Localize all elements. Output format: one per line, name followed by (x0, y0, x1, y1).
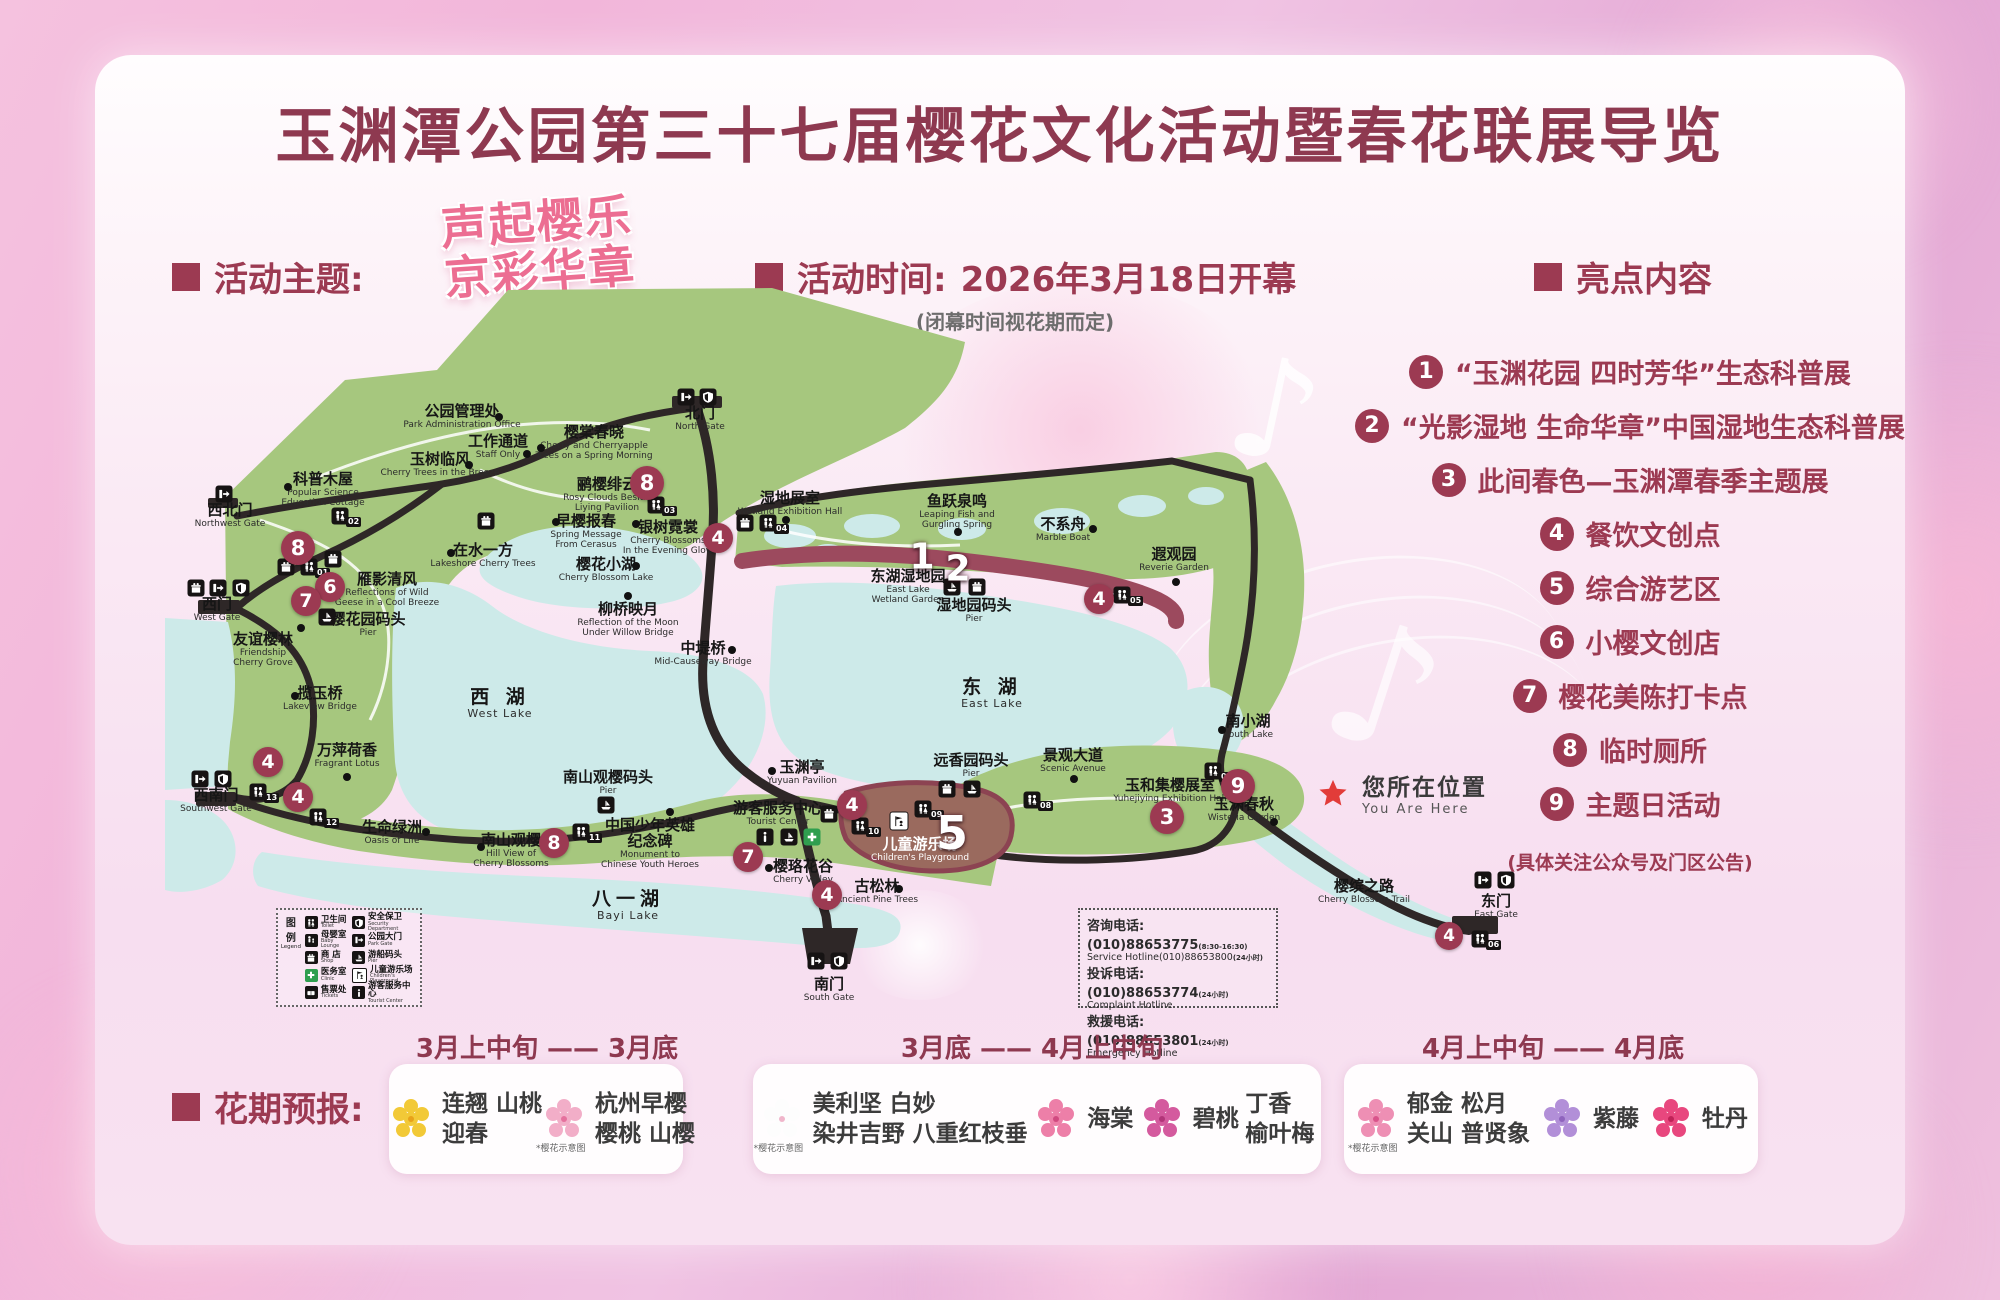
legend-item: 商 店Shop (305, 949, 349, 966)
flower-name: 榆叶梅 (1245, 1122, 1314, 1146)
map-label-en: Pier (933, 769, 1008, 779)
map-dot (495, 413, 503, 421)
map-marker-4: 4 (1084, 584, 1114, 614)
map-dot (291, 692, 299, 700)
map-dot (343, 773, 351, 781)
map-dot (632, 562, 640, 570)
flower-name: 牡丹 (1702, 1107, 1748, 1131)
crabapple-flower-icon (1034, 1097, 1078, 1141)
map-label-cn: 雁影清风 (335, 572, 439, 588)
map-label-en: Popular Science Education Cottage (281, 488, 364, 509)
star-icon (1318, 778, 1348, 808)
map-dot (1218, 726, 1226, 734)
forecast-entry: *樱花示意图郁金 松月关山 普贤象 (1354, 1092, 1530, 1145)
map-label-en: Ancient Pine Trees (836, 895, 918, 905)
map-label: 柳桥映月Reflection of the Moon Under Willow … (577, 602, 678, 638)
map-dot (422, 828, 430, 836)
forecast-period-2: 3月底 —— 4月上中旬 (901, 1028, 1163, 1065)
map-label: 景观大道Scenic Avenue (1040, 748, 1106, 774)
legend-item-text: 公园大门Park Gate (368, 933, 402, 947)
map-dot (782, 516, 790, 524)
map-label-cn: 公园管理处 (403, 404, 520, 420)
legend-item-en: Pier (368, 959, 402, 964)
legend-column-1: 卫生间Toilet母婴室Baby Lounge商 店Shop医务室Clinic售… (305, 914, 349, 1001)
map-label-cn: 西门 (194, 597, 241, 613)
forecast-entry: 紫藤 (1540, 1097, 1639, 1141)
legend-item: 游客服务中心Tourist Center (352, 984, 418, 1001)
pier-icon (781, 829, 798, 846)
pier-icon (964, 781, 981, 798)
map-label-en: Scenic Avenue (1040, 764, 1106, 774)
baby-icon (305, 934, 318, 947)
legend-item-en: Toilet (321, 924, 347, 929)
toilet-number-tag: 04 (774, 524, 789, 534)
forecast-section-header: 花期预报: (172, 1082, 364, 1131)
section-bullet (172, 1093, 200, 1121)
pier-icon (319, 609, 336, 626)
map-label-en: Lakeshore Cherry Trees (430, 559, 535, 569)
toilet-number-tag: 02 (346, 517, 361, 527)
map-label-en: Park Administration Office (403, 420, 520, 430)
forecast-period-1: 3月上中旬 —— 3月底 (416, 1028, 678, 1065)
map-label-cn: 早樱报春 (550, 514, 621, 530)
map-label: 湿地园码头Pier (936, 598, 1011, 624)
map-label: 万萍荷香Fragrant Lotus (314, 743, 379, 769)
forecast-entry-names: 连翘 山桃迎春 (442, 1092, 542, 1145)
peony-flower-icon (1649, 1097, 1693, 1141)
map-dot (728, 646, 736, 654)
legend-item-en: Park Gate (368, 942, 402, 947)
legend-item-en: Baby Lounge (321, 939, 349, 949)
map-label: 古松林Ancient Pine Trees (836, 879, 918, 905)
shop-icon (478, 513, 495, 530)
map-label-cn: 玉和集樱展室 (1113, 778, 1226, 794)
map-marker-2: 2 (945, 549, 970, 590)
cherry-white-flower-icon: *樱花示意图 (760, 1097, 804, 1141)
flower-name: 碧桃 (1193, 1107, 1239, 1131)
map-label: 东 湖East Lake (961, 678, 1023, 711)
map-label: 南小湖South Lake (1223, 714, 1273, 740)
map-label-cn: 万萍荷香 (314, 743, 379, 759)
flower-name: 杭州早樱 (595, 1092, 695, 1116)
forecast-box-2: *樱花示意图美利坚 白妙染井吉野 八重红枝垂海棠碧桃丁香榆叶梅 (753, 1064, 1321, 1174)
map-dot (537, 444, 545, 452)
toilet-number-tag: 05 (1128, 596, 1143, 606)
map-dot (895, 885, 903, 893)
map-label-en: South Lake (1223, 730, 1273, 740)
map-dot (1172, 578, 1180, 586)
legend-item-en: Tickets (321, 994, 347, 999)
map-label: 游客服务中心Tourist Center (733, 801, 823, 827)
map-label-cn: 南小湖 (1223, 714, 1273, 730)
map-label: 樱花小湖Cherry Blossom Lake (559, 557, 654, 583)
cherry-deep-flower-icon: *樱花示意图 (1354, 1097, 1398, 1141)
legend-item: 安全保卫Security Department (352, 914, 418, 931)
hotline-number: (010)88653774 (1087, 986, 1198, 1001)
map-label: 雁影清风Reflections of Wild Geese in a Cool … (335, 572, 439, 608)
map-marker-8: 8 (630, 466, 664, 500)
map-dot (666, 808, 674, 816)
legend-item-cn: 游客服务中心 (368, 982, 418, 999)
gate-icon (352, 934, 365, 947)
legend-title: 图 例 Legend (280, 914, 302, 1001)
toilet-icon (305, 916, 318, 929)
hotline-row: 咨询电话: (010)88653775(8:30-16:30) (1087, 915, 1269, 953)
flower-name: 连翘 山桃 (442, 1092, 542, 1116)
map-label: 公园管理处Park Administration Office (403, 404, 520, 430)
map-label-en: Pier (563, 786, 653, 796)
info-icon (757, 829, 774, 846)
flower-name: 丁香 (1245, 1092, 1314, 1116)
map-label: 友谊樱林Friendship Cherry Grove (233, 632, 293, 668)
legend-item-text: 游船码头Pier (368, 951, 402, 965)
map-label-cn: 湿地园码头 (936, 598, 1011, 614)
toilet-number-tag: 03 (662, 506, 677, 516)
cherry-illustration-note: *樱花示意图 (1348, 1141, 1398, 1154)
map-label-en: East Lake (961, 698, 1023, 711)
map-label: 生命绿洲Oasis of Life (362, 820, 422, 846)
map-label: 中堤桥Mid-Causeway Bridge (654, 641, 751, 667)
map-label-cn: 玉渊亭 (767, 760, 837, 776)
legend-item-en: Tourist Center (368, 999, 418, 1004)
legend-item: 售票处Tickets (305, 984, 349, 1001)
map-dot (1070, 775, 1078, 783)
map-label-cn: 樱珞花谷 (773, 859, 833, 875)
map-label-en: Marble Boat (1036, 533, 1090, 543)
map-label-cn: 柳桥映月 (577, 602, 678, 618)
legend-item-text: 商 店Shop (321, 951, 341, 965)
map-dot (552, 518, 560, 526)
security-icon (831, 953, 848, 970)
forecast-entry: 丁香榆叶梅 (1245, 1092, 1314, 1145)
you-are-here: 您所在位置 You Are Here (1318, 768, 1487, 817)
hotline-en: Complaint Hotline (1087, 1001, 1269, 1011)
map-marker-4: 4 (283, 782, 313, 812)
map-label-cn: 游客服务中心 (733, 801, 823, 817)
map-label-cn: 西北门 (195, 503, 266, 519)
map-label: 东门East Gate (1474, 894, 1518, 920)
flower-name: 海棠 (1087, 1107, 1133, 1131)
map-label-en: Reflection of the Moon Under Willow Brid… (577, 618, 678, 639)
forsythia-flower-icon (389, 1097, 433, 1141)
map-label: 西北门Northwest Gate (195, 503, 266, 529)
legend-column-2: 安全保卫Security Department公园大门Park Gate游船码头… (352, 914, 418, 1001)
cherry-pink-flower-icon: *樱花示意图 (542, 1097, 586, 1141)
toilet-number-tag: 12 (324, 818, 339, 828)
forecast-entry: 牡丹 (1649, 1097, 1748, 1141)
map-marker-8: 8 (281, 531, 315, 565)
legend-item: 医务室Clinic (305, 967, 349, 984)
map-label: 樱缤之路Cherry Blossom Trail (1318, 879, 1410, 905)
forecast-period-3: 4月上中旬 —— 4月底 (1422, 1028, 1684, 1065)
hotline-note: (24小时) (1198, 991, 1228, 999)
ticket-icon (305, 986, 318, 999)
map-label: 南山观樱Hill View of Cherry Blossoms (473, 833, 548, 869)
legend-item: 公园大门Park Gate (352, 932, 418, 949)
map-label: 鱼跃泉鸣Leaping Fish and Gurgling Spring (919, 494, 995, 530)
map-label-cn: 樱棠春晓 (535, 425, 652, 441)
hotline-cn: 投诉电话: (1087, 967, 1144, 982)
map-label-en: Pier (936, 614, 1011, 624)
hotline-cn: 咨询电话: (1087, 919, 1144, 934)
map-marker-4: 4 (837, 790, 867, 820)
map-label: 中国少年英雄 纪念碑Monument to Chinese Youth Hero… (601, 818, 699, 870)
legend-item-text: 售票处Tickets (321, 986, 347, 1000)
pier-icon (598, 797, 615, 814)
shop-icon (737, 515, 754, 532)
map-label-en: Southwest Gate (180, 804, 252, 814)
cherry-illustration-note: *樱花示意图 (536, 1141, 586, 1154)
toilet-number-tag: 10 (866, 827, 881, 837)
map-dot (523, 450, 531, 458)
map-label-en: Wetland Exhibition Hall (738, 507, 843, 517)
security-icon (1498, 872, 1515, 889)
map-label: 不系舟Marble Boat (1036, 517, 1090, 543)
flower-name: 紫藤 (1593, 1107, 1639, 1131)
map-label-cn: 中国少年英雄 纪念碑 (601, 818, 699, 850)
legend-item-text: 医务室Clinic (321, 968, 347, 982)
map-label: 玉渊亭Yuyuan Pavilion (767, 760, 837, 786)
map-label-en: South Gate (804, 993, 855, 1003)
clinic-icon (804, 829, 821, 846)
pier-icon (352, 951, 365, 964)
map-label-cn: 不系舟 (1036, 517, 1090, 533)
security-icon (233, 580, 250, 597)
map-label-cn: 景观大道 (1040, 748, 1106, 764)
toilet-number-tag: 06 (1486, 940, 1501, 950)
cherry-illustration-note: *樱花示意图 (754, 1141, 804, 1154)
map-label-en: Reverie Garden (1139, 563, 1209, 573)
you-are-here-label: 您所在位置 (1362, 768, 1487, 802)
map-label-en: Yuyuan Pavilion (767, 776, 837, 786)
map-dot (1089, 525, 1097, 533)
map-label-en: Friendship Cherry Grove (233, 648, 293, 669)
map-label-en: Bayi Lake (592, 910, 664, 923)
legend-item: 游船码头Pier (352, 949, 418, 966)
forecast-entry-names: 郁金 松月关山 普贤象 (1407, 1092, 1530, 1145)
wisteria-flower-icon (1540, 1097, 1584, 1141)
forecast-entry: *樱花示意图美利坚 白妙染井吉野 八重红枝垂 (760, 1092, 1028, 1145)
security-icon (215, 771, 232, 788)
legend-item: 母婴室Baby Lounge (305, 932, 349, 949)
map-label-cn: 北门 (675, 406, 725, 422)
map-label-cn: 友谊樱林 (233, 632, 293, 648)
map-label: 西南门Southwest Gate (180, 788, 252, 814)
map-label: 北门North Gate (675, 406, 725, 432)
map-marker-7: 7 (291, 586, 321, 616)
map-label: 遐观园Reverie Garden (1139, 547, 1209, 573)
map-legend: 图 例 Legend 卫生间Toilet母婴室Baby Lounge商 店Sho… (276, 908, 422, 1007)
map-label: 西门West Gate (194, 597, 241, 623)
security-icon (352, 916, 365, 929)
map-label-en: Lakeview Bridge (283, 702, 357, 712)
map-dot (465, 461, 473, 469)
map-marker-3: 3 (1150, 800, 1184, 834)
map-marker-1: 1 (909, 537, 934, 578)
toilet-number-tag: 08 (1038, 801, 1053, 811)
peach-flower-icon (1140, 1097, 1184, 1141)
forecast-entry-names: 海棠 (1087, 1107, 1133, 1131)
shop-icon (188, 580, 205, 597)
legend-item-text: 母婴室Baby Lounge (321, 931, 349, 950)
map-dot (768, 767, 776, 775)
flower-name: 美利坚 白妙 (813, 1092, 1028, 1116)
clinic-icon (305, 969, 318, 982)
map-label-cn: 玉树临风 (381, 452, 500, 468)
map-label-en: Reflections of Wild Geese in a Cool Bree… (335, 588, 439, 609)
map-label-cn: 科普木屋 (281, 472, 364, 488)
map-label: 南门South Gate (804, 977, 855, 1003)
shop-icon (939, 781, 956, 798)
map-dot (297, 624, 305, 632)
hotline-note: (24小时) (1198, 1039, 1228, 1047)
hotline-en: Service Hotline(010)88653800(24小时) (1087, 953, 1269, 963)
gate-icon (216, 486, 233, 503)
map-label-cn: 八一湖 (592, 890, 664, 910)
map-label-en: Cherry Trees in the Breeze (381, 468, 500, 478)
shop-icon (969, 579, 986, 596)
forecast-entry: 碧桃 (1140, 1097, 1239, 1141)
security-icon (700, 389, 717, 406)
map-label: 西 湖West Lake (467, 688, 532, 721)
map-label: 樱棠春晓Cherry and Cherryapple Trees on a Sp… (535, 425, 652, 461)
map-label-en: West Lake (467, 708, 532, 721)
map-label-en: Fragrant Lotus (314, 759, 379, 769)
map-label-en: Cherry and Cherryapple Trees on a Spring… (535, 441, 652, 462)
map-label-cn: 遐观园 (1139, 547, 1209, 563)
forecast-entry: *樱花示意图杭州早樱樱桃 山樱 (542, 1092, 695, 1145)
gate-icon (808, 953, 825, 970)
playground-icon (890, 812, 909, 831)
map-marker-4: 4 (253, 747, 283, 777)
map-dot (1270, 818, 1278, 826)
forecast-entry-names: 美利坚 白妙染井吉野 八重红枝垂 (813, 1092, 1028, 1145)
gate-icon (678, 389, 695, 406)
map-label-cn: 生命绿洲 (362, 820, 422, 836)
hotline-note: (8:30-16:30) (1198, 943, 1247, 951)
flower-name: 迎春 (442, 1122, 542, 1146)
gate-icon (210, 580, 227, 597)
legend-item-en: Clinic (321, 977, 347, 982)
info-icon (352, 986, 365, 999)
forecast-box-3: *樱花示意图郁金 松月关山 普贤象紫藤牡丹 (1344, 1064, 1758, 1174)
map-label-en: Cherry Blossoms In the Evening Glow (623, 536, 713, 557)
forecast-entry-names: 丁香榆叶梅 (1245, 1092, 1314, 1145)
legend-item-text: 卫生间Toilet (321, 916, 347, 930)
map-label-en: Oasis of Life (362, 836, 422, 846)
map-label: 樱花园码头Pier (330, 612, 405, 638)
forecast-entry-names: 碧桃 (1193, 1107, 1239, 1131)
map-label-cn: 西 湖 (467, 688, 532, 708)
map-label-en: Spring Message From Cerasus (550, 530, 621, 551)
map-label-cn: 西南门 (180, 788, 252, 804)
forecast-box-1: 连翘 山桃迎春*樱花示意图杭州早樱樱桃 山樱 (389, 1064, 683, 1174)
map-label: 南山观樱码头Pier (563, 770, 653, 796)
map-label-en: Pier (330, 628, 405, 638)
map-label-en: Cherry Blossom Lake (559, 573, 654, 583)
map-label-cn: 古松林 (836, 879, 918, 895)
map-marker-7: 7 (733, 842, 763, 872)
map-label: 科普木屋Popular Science Education Cottage (281, 472, 364, 508)
map-label-cn: 樱缤之路 (1318, 879, 1410, 895)
map-marker-4: 4 (703, 523, 733, 553)
legend-item: 卫生间Toilet (305, 914, 349, 931)
shop-icon (821, 806, 838, 823)
map-marker-4: 4 (1435, 922, 1463, 950)
map-label: 在水一方Lakeshore Cherry Trees (430, 543, 535, 569)
map-dot (632, 520, 640, 528)
map-label-en: Mid-Causeway Bridge (654, 657, 751, 667)
shop-icon (305, 951, 318, 964)
map-label-en: East Gate (1474, 910, 1518, 920)
you-are-here-label-en: You Are Here (1362, 802, 1487, 817)
toilet-number-tag: 13 (264, 793, 279, 803)
map-label-cn: 湿地展室 (738, 491, 843, 507)
hotline-number: (010)88653775 (1087, 938, 1198, 953)
map-label: 玉树临风Cherry Trees in the Breeze (381, 452, 500, 478)
map-marker-4: 4 (812, 880, 842, 910)
forecast-entry-names: 杭州早樱樱桃 山樱 (595, 1092, 695, 1145)
map-label: 湿地展室Wetland Exhibition Hall (738, 491, 843, 517)
gate-icon (1475, 872, 1492, 889)
map-label-cn: 东门 (1474, 894, 1518, 910)
map-label: 远香园码头Pier (933, 753, 1008, 779)
map-label: 八一湖Bayi Lake (592, 890, 664, 923)
map-label-cn: 工作通道 (468, 434, 528, 450)
shop-icon (325, 551, 342, 568)
legend-item-text: 安全保卫Security Department (368, 913, 418, 932)
map-label-cn: 樱花园码头 (330, 612, 405, 628)
toilet-number-tag: 11 (587, 833, 602, 843)
map-label-cn: 鱼跃泉鸣 (919, 494, 995, 510)
playground-icon (352, 968, 367, 983)
map-dot (477, 843, 485, 851)
map-label-en: Tourist Center (733, 817, 823, 827)
map-label-en: Monument to Chinese Youth Heroes (601, 850, 699, 871)
forecast-label: 花期预报: (214, 1082, 364, 1131)
map-label-en: East Lake Wetland Garden (870, 585, 945, 606)
map-marker-5: 5 (936, 806, 968, 860)
map-dot (624, 592, 632, 600)
map-label-en: West Gate (194, 613, 241, 623)
flower-name: 樱桃 山樱 (595, 1122, 695, 1146)
legend-item-en: Security Department (368, 922, 418, 932)
map-marker-9: 9 (1221, 769, 1255, 803)
map-dot (284, 483, 292, 491)
forecast-entry: 连翘 山桃迎春 (389, 1092, 542, 1145)
flower-name: 郁金 松月 (1407, 1092, 1530, 1116)
map-label-en: North Gate (675, 422, 725, 432)
map-label-cn: 远香园码头 (933, 753, 1008, 769)
forecast-entry-names: 牡丹 (1702, 1107, 1748, 1131)
flower-name: 染井吉野 八重红枝垂 (813, 1122, 1028, 1146)
map-dot (954, 528, 962, 536)
map-dot (765, 864, 773, 872)
map-label-en: Cherry Blossom Trail (1318, 895, 1410, 905)
festival-guide-poster: ♪ ♫ ♪ 玉渊潭公园第三十七届樱花文化活动暨春花联展导览 活动主题: 声起樱乐… (0, 0, 2000, 1300)
map-label-cn: 中堤桥 (654, 641, 751, 657)
map-marker-8: 8 (539, 828, 569, 858)
map-label-cn: 东 湖 (961, 678, 1023, 698)
hotline-row: 投诉电话: (010)88653774(24小时) (1087, 963, 1269, 1001)
flower-name: 关山 普贤象 (1407, 1122, 1530, 1146)
legend-item-text: 游客服务中心Tourist Center (368, 982, 418, 1004)
map-label: 早樱报春Spring Message From Cerasus (550, 514, 621, 550)
map-label-cn: 南山观樱码头 (563, 770, 653, 786)
gate-icon (192, 771, 209, 788)
forecast-entry-names: 紫藤 (1593, 1107, 1639, 1131)
map-label-en: Hill View of Cherry Blossoms (473, 849, 548, 870)
